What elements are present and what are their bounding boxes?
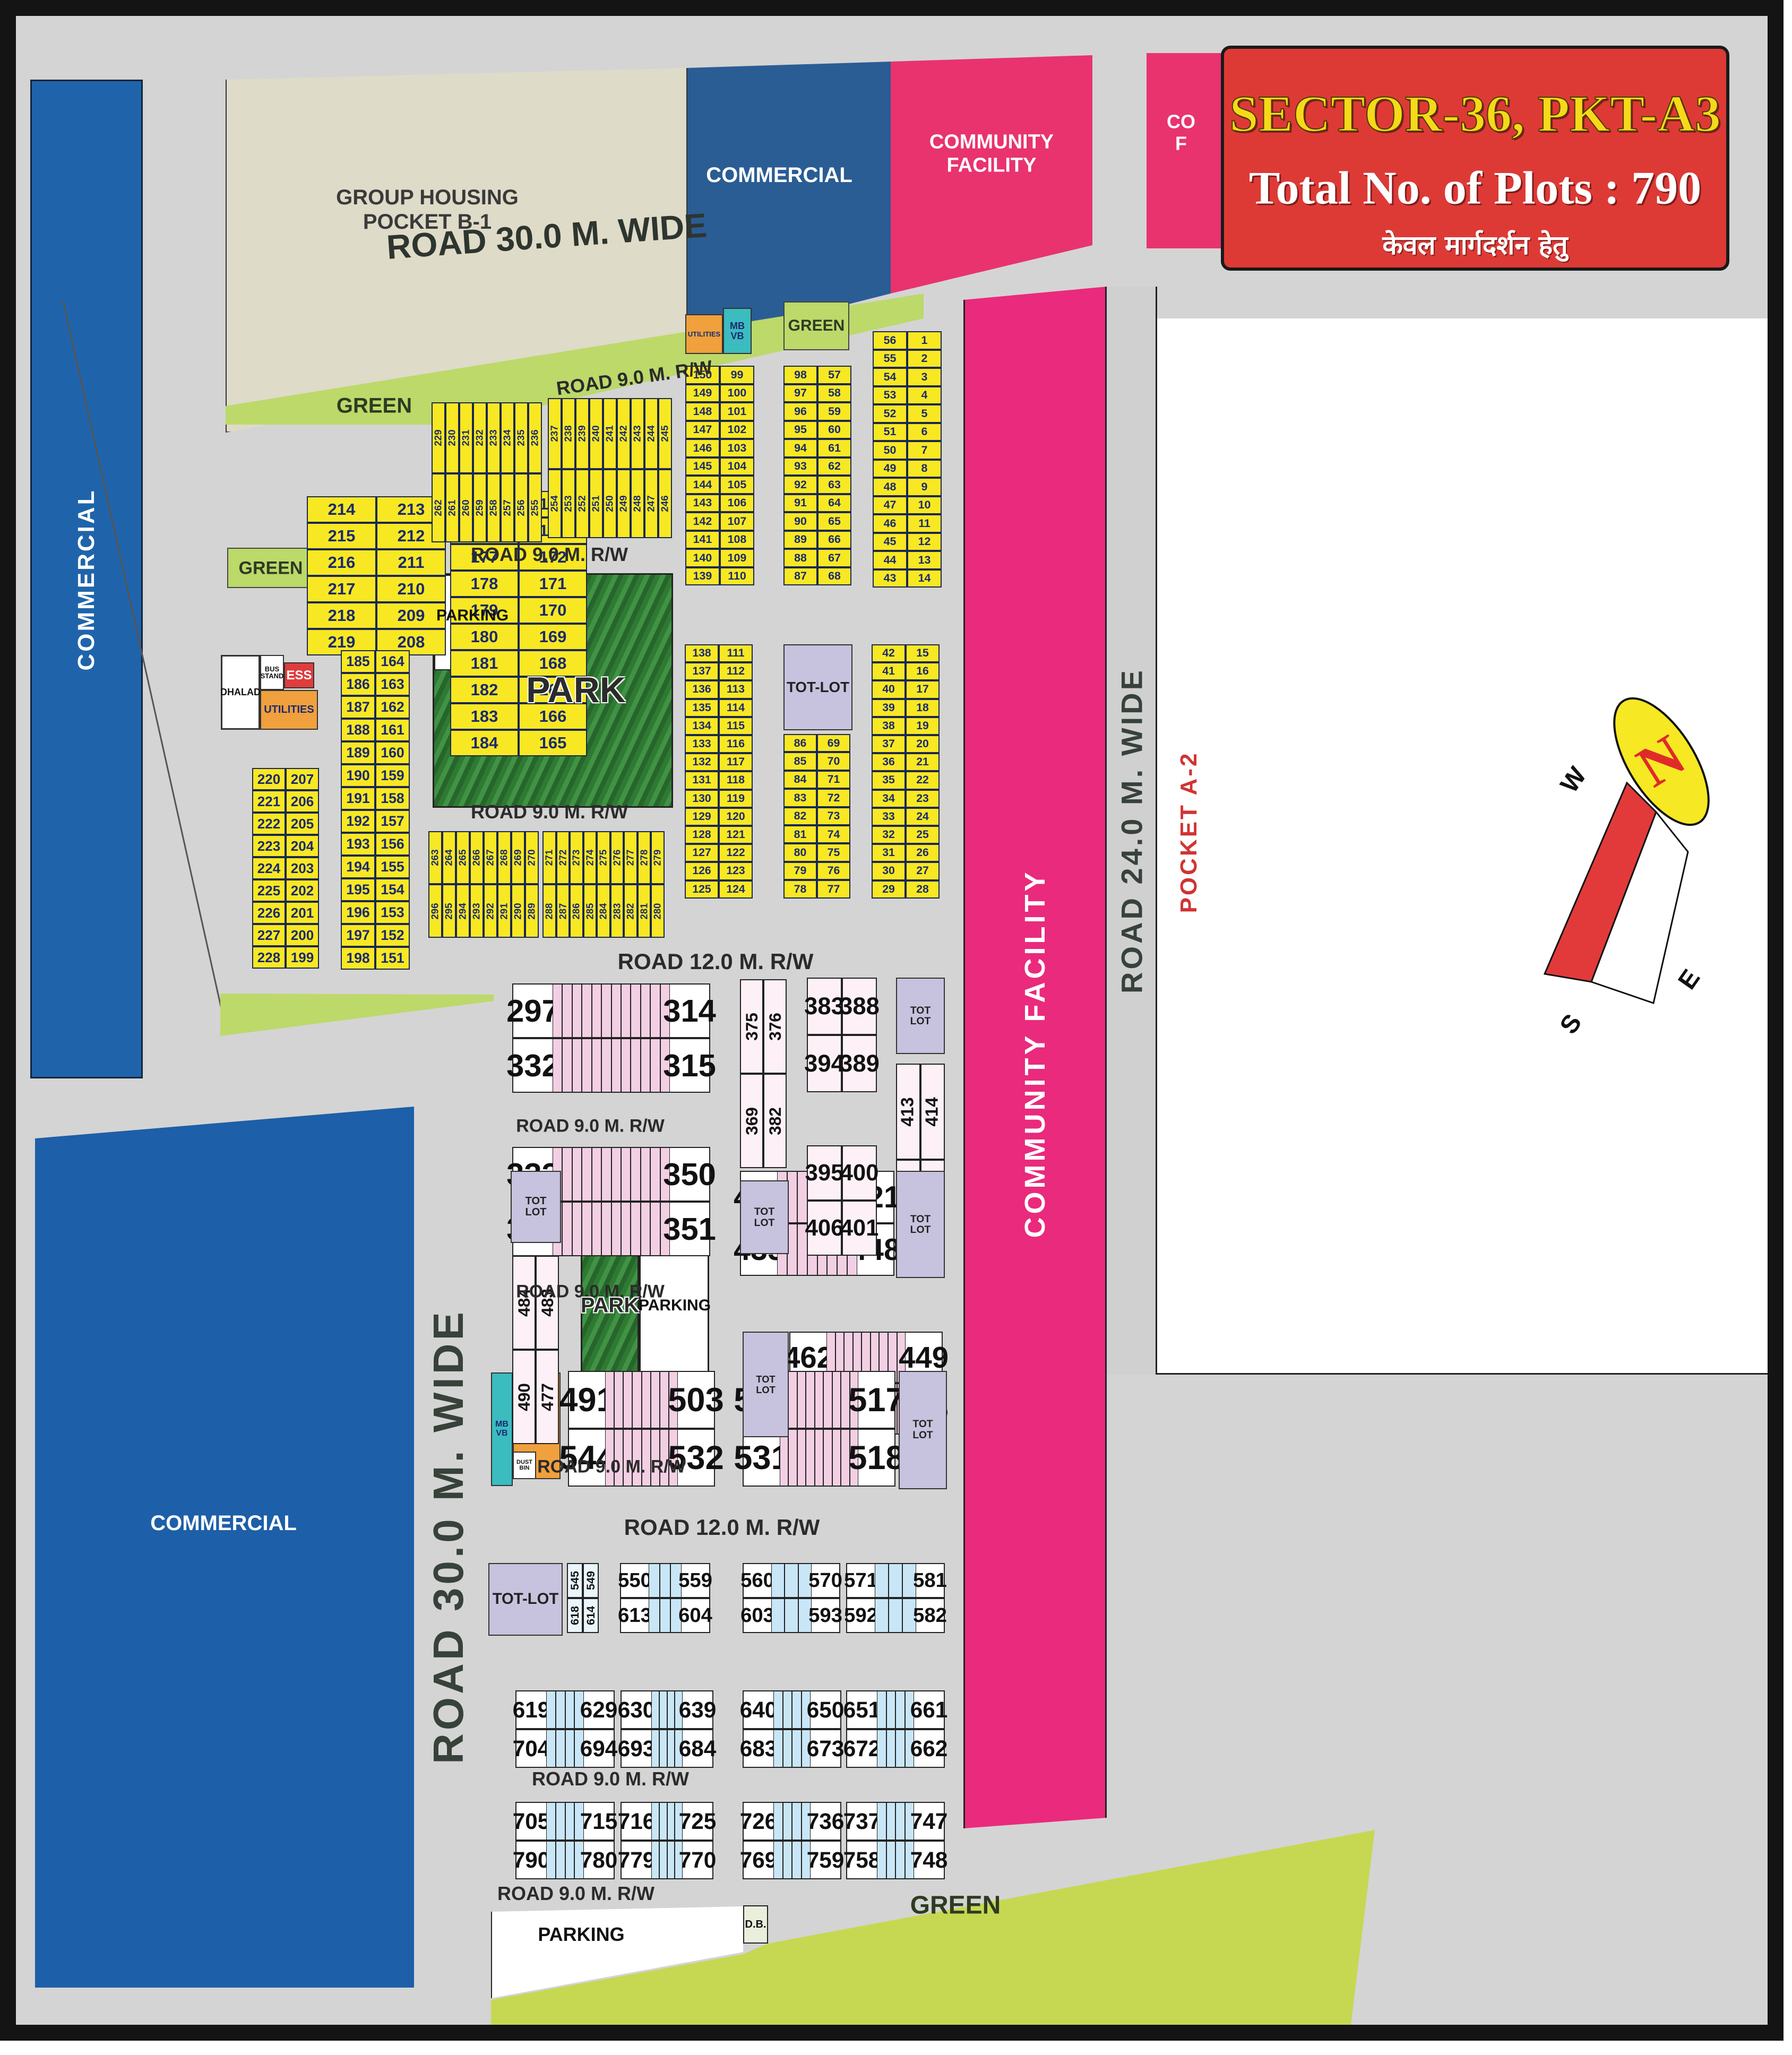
plot-cell: 215 [307,523,376,549]
plot-cell: 58 [817,384,851,403]
utilities-box: UTILITIES [260,690,318,730]
community-partial-line1: CO [1167,111,1195,133]
tot-lot-box: TOTLOT [743,1332,789,1437]
plot-cell: 283 [610,884,624,938]
plot-strip [877,1691,886,1728]
plot-cell: 725 [683,1803,712,1840]
plot-row: 603593 [743,1598,840,1633]
plot-strip [553,1039,562,1092]
plot-cell: 560 [744,1564,771,1597]
plot-cell: 122 [719,844,753,862]
road-30-vertical-label: ROAD 30.0 M. WIDE [424,1309,473,1764]
plot-cell: 54 [873,368,907,386]
mb-label-top: MB [730,321,745,331]
plot-cell: 18 [906,699,940,717]
plot-cell: 187 [341,696,375,719]
plot-number: 296 [429,903,441,919]
plot-cell: 630 [622,1691,651,1728]
plot-number: 382 [765,1107,785,1135]
plot-cell: 201 [286,902,319,924]
plot-row: 758748 [846,1841,945,1879]
plot-number: 233 [488,429,499,446]
plot-cell: 66 [817,531,851,549]
plot-strip [572,1039,582,1092]
plot-cell: 271 [542,831,556,884]
plot-cell: 57 [817,366,851,384]
plot-cell: 37 [872,735,906,753]
plot-cell: 278 [637,831,651,884]
plot-row: 672662 [846,1729,945,1768]
plot-cell: 289 [525,884,539,938]
plot-number: 289 [526,903,538,919]
plot-strip [641,1203,650,1255]
plot-cell: 69 [817,734,850,752]
plot-cell: 188 [341,719,375,741]
plot-cell: 207 [286,768,319,790]
label-r9: ROAD 9.0 M. R/W [532,1768,689,1790]
plot-cell: 50 [873,441,907,460]
plot-row: 560570 [743,1563,840,1598]
plot-strip [659,1842,667,1878]
plot-number: 274 [584,850,596,866]
plot-cell: 49 [873,460,907,478]
plot-cell: 413 [896,1064,920,1160]
plot-cell: 94 [783,439,817,457]
plot-cell: 780 [584,1842,614,1878]
label-parking: PARKING [436,607,509,625]
label-parking: PARKING [538,1923,624,1946]
plot-cell: 22 [906,771,940,789]
db-box: D.B. [743,1905,768,1944]
plot-strip [667,1691,675,1728]
plot-number: 248 [632,495,643,512]
tot-lot-label: LOT [910,1224,931,1235]
plot-strip [562,1148,572,1201]
plot-cell: 256 [514,473,528,542]
plot-cell: 484 [512,1256,536,1350]
plot-cell: 3 [907,368,942,386]
plot-strip [886,1803,896,1840]
plot-cell: 27 [906,862,940,880]
label-parking: PARKING [639,1297,711,1315]
plot-cell: 190 [341,764,375,787]
plot-strip [773,1842,783,1878]
tot-lot-box: TOTLOT [899,1371,947,1489]
plot-cell: 143 [685,494,720,513]
plot-cell: 216 [307,549,376,576]
plot-cell: 118 [719,771,753,789]
plot-cell: 182 [450,677,519,703]
plot-number: 257 [502,499,513,516]
community-partial-line2: F [1167,133,1195,154]
plot-cell: 157 [375,810,410,833]
vb-label-mid: VB [496,1429,507,1438]
plot-cell: 11 [907,514,942,533]
plot-cell: 151 [375,947,410,970]
plot-number: 413 [898,1097,918,1126]
plot-cell: 72 [817,789,850,807]
plot-cell: 604 [682,1599,709,1632]
bus-stand-box: BUS STAND [260,655,284,690]
vb-label-top: VB [730,331,744,341]
ess-label: ESS [286,668,312,683]
plot-cell: 85 [783,752,817,770]
plot-cell: 99 [720,366,754,384]
plot-number: 414 [923,1097,943,1126]
plot-row: 550559 [620,1563,710,1598]
bus-stand-label-2: STAND [261,672,284,679]
plot-cell: 640 [744,1691,773,1728]
plot-cell: 401 [842,1201,877,1256]
plot-cell: 154 [375,878,410,901]
plot-cell: 779 [622,1842,651,1878]
plot-cell: 230 [445,402,459,473]
plot-cell: 88 [783,549,817,567]
plot-cell: 134 [685,717,719,735]
tot-lot-label: TOT [910,1214,931,1224]
plot-strip [889,1599,902,1632]
plot-cell: 21 [906,753,940,771]
plot-cell: 224 [252,857,286,879]
plot-strip [783,1842,792,1878]
plot-strip [582,985,591,1037]
commercial-zone-top-label: COMMERCIAL [706,163,852,187]
plot-number: 244 [645,425,657,442]
plot-cell: 44 [873,551,907,569]
plot-cell: 75 [817,843,850,861]
plot-cell: 102 [720,421,754,439]
plot-cell: 109 [720,549,754,567]
plot-cell: 251 [589,469,603,538]
group-housing-label-line1: GROUP HOUSING [336,185,519,210]
plot-cell: 369 [740,1074,763,1168]
plot-cell: 414 [920,1064,945,1160]
label-r9: ROAD 9.0 M. R/W [497,1883,654,1905]
plot-strip [783,1803,792,1840]
plot-cell: 531 [744,1430,780,1486]
mb-label-mid: MB [495,1420,509,1429]
plot-cell: 20 [906,735,940,753]
plot-cell: 248 [631,469,644,538]
plot-cell: 97 [783,384,817,403]
plot-cell: 748 [914,1842,944,1878]
plot-cell: 503 [678,1372,714,1428]
label-r12: ROAD 12.0 M. R/W [624,1515,820,1540]
plot-number: 251 [590,495,602,512]
plot-strip [792,1803,802,1840]
plot-strip [605,1372,614,1428]
plot-row: 769759 [743,1841,841,1879]
plot-strip [546,1842,556,1878]
plot-strip [797,1372,806,1428]
plot-cell: 2 [907,350,942,368]
plot-number: 277 [625,850,636,866]
plot-number: 262 [433,499,444,516]
plot-cell: 592 [847,1599,875,1632]
plot-cell: 130 [685,790,719,808]
plot-strip [650,1148,660,1201]
plot-cell: 249 [617,469,631,538]
plot-strip [649,1564,660,1597]
plot-cell: 91 [783,494,817,513]
plot-cell: 15 [906,644,940,662]
plot-cell: 80 [783,843,817,861]
plot-cell: 226 [252,902,286,924]
plot-cell: 291 [497,884,511,938]
plot-strip [771,1564,785,1597]
plot-strip [623,1372,632,1428]
plot-row: 332315 [512,1038,710,1093]
plot-strip [649,1599,660,1632]
plot-cell: 33 [872,808,906,826]
plot-cell: 672 [847,1730,877,1767]
plot-row: 297314 [512,983,710,1038]
plot-cell: 258 [487,473,501,542]
plot-strip [556,1842,565,1878]
plot-cell: 297 [513,985,553,1037]
plot-strip [651,1372,660,1428]
plot-strip [667,1842,675,1878]
plot-number: 230 [446,429,458,446]
plot-cell: 203 [286,857,319,879]
plot-cell: 694 [584,1730,614,1767]
plot-strip [611,1203,621,1255]
plot-cell: 296 [428,884,442,938]
plot-cell: 559 [682,1564,709,1597]
plot-number: 272 [557,850,568,866]
plot-cell: 350 [670,1148,709,1201]
plot-cell: 81 [783,825,817,843]
plot-cell: 593 [812,1599,839,1632]
plot-number: 490 [514,1383,534,1411]
label-green: GREEN [910,1891,1001,1920]
plot-cell: 95 [783,421,817,439]
plot-cell: 235 [514,402,528,473]
plot-cell: 164 [375,650,410,673]
plot-cell: 108 [720,531,754,549]
plot-cell: 111 [719,644,753,662]
plot-cell: 280 [651,884,665,938]
plot-cell: 136 [685,680,719,698]
plot-number: 278 [638,850,650,866]
plot-cell: 123 [719,862,753,880]
community-facility-top-label: COMMUNITY FACILITY [929,131,1054,177]
plot-number: 375 [742,1013,762,1041]
plot-strip [792,1842,802,1878]
label-park: PARK [581,1294,639,1318]
plot-cell: 571 [847,1564,875,1597]
plot-number: 276 [611,850,623,866]
plot-cell: 19 [906,717,940,735]
tot-lot-label: LOT [756,1385,776,1395]
plot-number: 290 [512,903,524,919]
plot-strip [788,1372,797,1428]
plot-cell: 265 [456,831,470,884]
plot-cell: 267 [484,831,497,884]
plot-cell: 295 [442,884,456,938]
plot-cell: 383 [807,978,842,1035]
plot-cell: 125 [685,880,719,899]
plot-cell: 257 [501,473,514,542]
plot-cell: 112 [719,662,753,680]
plot-cell: 286 [570,884,583,938]
plot-strip [611,1148,621,1201]
plot-number: 241 [604,425,616,442]
plot-cell: 196 [341,901,375,924]
plot-strip [546,1691,556,1728]
plot-cell: 56 [873,331,907,350]
tot-lot-label: LOT [912,1430,933,1441]
plot-cell: 129 [685,808,719,826]
plot-cell: 661 [914,1691,944,1728]
plot-strip [601,985,611,1037]
tot-lot-label: LOT [754,1218,775,1228]
plot-cell: 705 [516,1803,546,1840]
plot-cell: 406 [807,1201,842,1256]
plot-cell: 211 [376,549,446,576]
compass-rose: N W S E [1529,674,1752,1046]
plot-cell: 153 [375,901,410,924]
plot-cell: 726 [744,1803,773,1840]
commercial-zone-bottom [35,1107,414,1988]
plot-strip [806,1372,814,1428]
plot-cell: 86 [783,734,817,752]
plot-cell: 618 [567,1598,583,1633]
plot-cell: 29 [872,880,906,899]
plot-cell: 236 [528,402,542,473]
plot-cell: 62 [817,457,851,476]
plot-cell: 144 [685,476,720,494]
plot-cell: 292 [484,884,497,938]
plot-strip [875,1599,889,1632]
plot-cell: 89 [783,531,817,549]
plot-cell: 116 [719,735,753,753]
plot-strip [631,1039,640,1092]
plot-cell: 192 [341,810,375,833]
plot-cell: 651 [847,1691,877,1728]
plot-number: 288 [544,903,555,919]
plot-strip [780,1430,788,1486]
plot-strip [592,1039,601,1092]
plot-cell: 87 [783,567,817,586]
plot-strip [651,1691,659,1728]
plot-cell: 747 [914,1803,944,1840]
compass-s-label: S [1555,1009,1588,1039]
plot-number: 261 [446,499,458,516]
plot-cell: 104 [720,457,754,476]
plot-number: 287 [557,903,568,919]
plot-strip [659,1803,667,1840]
plot-strip [877,1842,886,1878]
tot-lot-label: TOT [756,1374,775,1384]
plot-cell: 48 [873,478,907,496]
plot-cell: 40 [872,680,906,698]
plot-cell: 28 [906,880,940,899]
plot-strip [815,1430,823,1486]
plot-cell: 45 [873,533,907,551]
plot-cell: 279 [651,831,665,884]
plot-cell: 51 [873,423,907,442]
plot-number: 249 [618,495,630,512]
plot-cell: 277 [624,831,637,884]
commercial-zone-bottom-label: COMMERCIAL [150,1511,297,1535]
plot-number: 252 [576,495,588,512]
community-facility-partial-label: CO F [1167,111,1195,155]
ess-box: ESS [284,662,314,688]
plot-cell: 25 [906,826,940,844]
plot-strip [877,1730,886,1767]
plot-cell: 31 [872,844,906,862]
plot-strip [621,1148,631,1201]
plot-number: 243 [632,425,643,442]
plot-strip [572,1148,582,1201]
plot-cell: 790 [516,1842,546,1878]
plot-row: 630639 [621,1690,713,1729]
plot-cell: 252 [575,469,589,538]
plot-cell: 101 [720,402,754,421]
plot-cell: 5 [907,404,942,423]
tot-lot-box: TOTLOT [896,1171,945,1278]
plot-cell: 64 [817,494,851,513]
tot-lot-box: TOTLOT [896,978,945,1054]
plot-cell: 400 [842,1145,877,1201]
plot-strip [631,1203,640,1255]
label-r9: ROAD 9.0 M. R/W [537,1457,686,1478]
tot-lot-label: LOT [910,1016,931,1026]
plot-strip [592,985,601,1037]
plot-cell: 376 [763,979,787,1074]
plot-row: 693684 [621,1729,713,1768]
compass-e-label: E [1673,964,1706,995]
plot-cell: 90 [783,512,817,531]
plot-cell: 266 [470,831,484,884]
plot-cell: 147 [685,421,720,439]
plot-strip [806,1430,814,1486]
db-label: D.B. [745,1919,766,1931]
plot-cell: 517 [858,1372,894,1428]
plot-cell: 200 [286,924,319,946]
plot-cell: 209 [376,602,446,629]
plot-strip [773,1691,783,1728]
plot-number: 269 [512,849,524,866]
tot-lot-label: TOT [910,1005,931,1016]
plot-cell: 142 [685,512,720,531]
plot-cell: 76 [817,862,850,880]
plot-cell: 284 [597,884,610,938]
plot-cell: 30 [872,862,906,880]
plot-strip [783,1730,792,1767]
plot-strip [785,1599,798,1632]
plot-cell: 79 [783,862,817,880]
plot-cell: 107 [720,512,754,531]
plot-cell: 170 [519,597,587,624]
plot-cell: 477 [536,1350,559,1444]
plot-cell: 9 [907,478,942,496]
plot-cell: 758 [847,1842,877,1878]
plot-cell: 128 [685,826,719,844]
plot-number: 275 [598,850,609,866]
plot-number: 255 [529,499,541,516]
plot-number: 234 [502,429,513,446]
plot-number: 264 [443,849,455,866]
plot-row: 704694 [515,1729,615,1768]
plot-cell: 41 [872,662,906,680]
plot-cell: 237 [548,398,562,469]
plot-cell: 769 [744,1842,773,1878]
plot-cell: 238 [562,398,575,469]
plot-row: 619629 [515,1690,615,1729]
plot-cell: 243 [631,398,644,469]
